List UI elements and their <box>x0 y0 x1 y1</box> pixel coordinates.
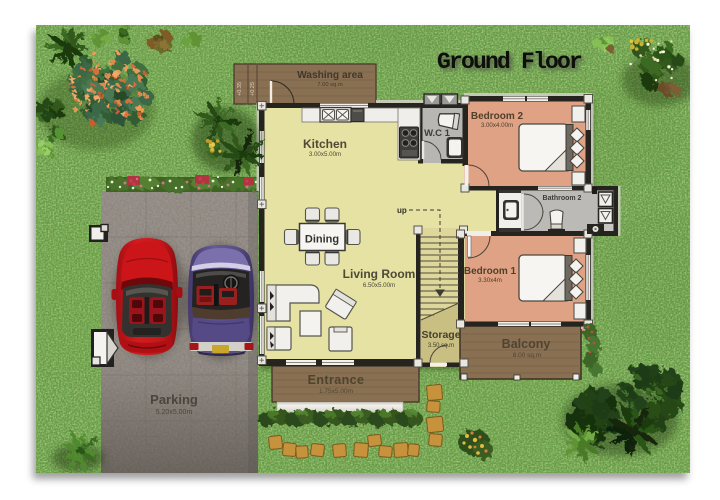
svg-text:Bedroom 1: Bedroom 1 <box>464 266 517 277</box>
svg-text:up: up <box>397 206 407 215</box>
svg-text:+0.25: +0.25 <box>250 82 256 96</box>
svg-text:+0.35: +0.35 <box>237 82 243 96</box>
svg-text:7.00 sq.m: 7.00 sq.m <box>317 82 343 88</box>
svg-text:Dining: Dining <box>305 234 339 246</box>
svg-text:3.50 sq.m: 3.50 sq.m <box>428 343 454 349</box>
svg-text:Storage: Storage <box>421 329 460 341</box>
svg-text:3.00x4.00m: 3.00x4.00m <box>481 122 513 129</box>
svg-text:Ground Floor: Ground Floor <box>437 49 582 75</box>
svg-text:Washing area: Washing area <box>297 70 363 81</box>
svg-text:Parking: Parking <box>150 392 198 407</box>
svg-text:Entrance: Entrance <box>308 373 365 387</box>
svg-text:8.00 sq.m: 8.00 sq.m <box>513 352 542 359</box>
svg-text:Kitchen: Kitchen <box>303 137 347 151</box>
svg-text:3.00x5.00m: 3.00x5.00m <box>309 151 341 158</box>
svg-text:Bedroom 2: Bedroom 2 <box>471 111 524 122</box>
svg-text:Balcony: Balcony <box>502 337 551 351</box>
svg-text:Bathroom 2: Bathroom 2 <box>543 195 582 202</box>
svg-text:5.20x5.00m: 5.20x5.00m <box>156 409 193 416</box>
svg-text:1.75x5.00m: 1.75x5.00m <box>319 388 353 395</box>
svg-text:W.C 1: W.C 1 <box>424 128 451 139</box>
svg-text:3.30x4m: 3.30x4m <box>478 277 502 284</box>
svg-text:Living Room: Living Room <box>343 267 416 281</box>
svg-text:6.50x5.00m: 6.50x5.00m <box>363 282 395 289</box>
